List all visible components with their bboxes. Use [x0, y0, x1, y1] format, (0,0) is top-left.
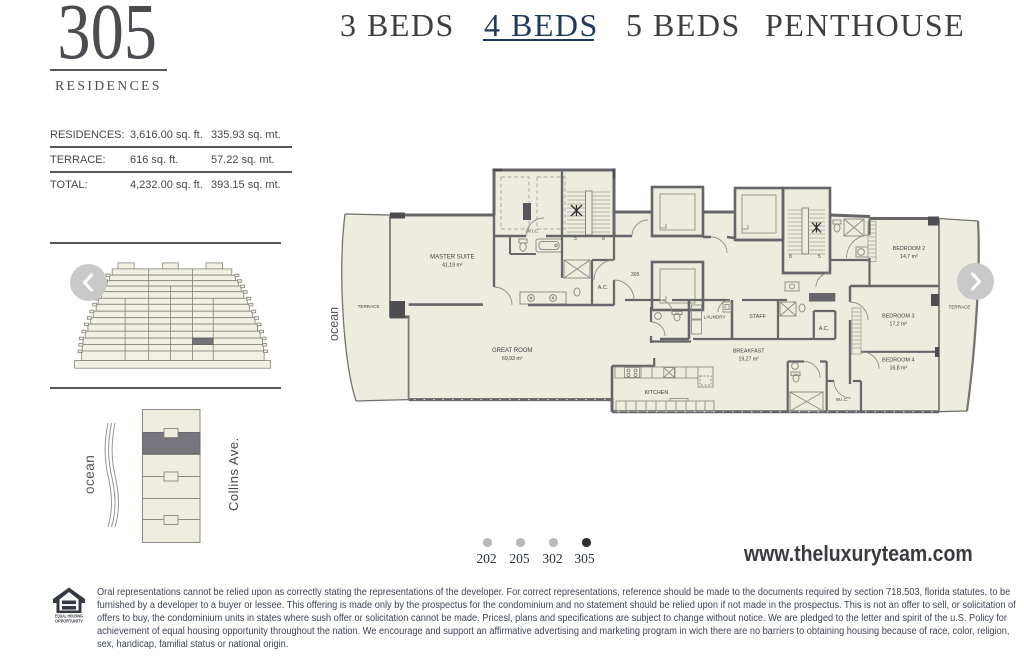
svg-text:GREAT ROOM: GREAT ROOM: [492, 348, 532, 354]
svg-text:5: 5: [818, 254, 821, 260]
svg-text:16,8 m²: 16,8 m²: [890, 366, 908, 372]
svg-text:A.C.: A.C.: [819, 326, 829, 332]
svg-text:BREAKFAST: BREAKFAST: [733, 349, 765, 355]
svg-text:OPPORTUNITY: OPPORTUNITY: [55, 618, 83, 623]
svg-text:TERRACE: TERRACE: [358, 304, 380, 309]
svg-text:BEDROOM 3: BEDROOM 3: [882, 314, 914, 320]
svg-text:BEDROOM 2: BEDROOM 2: [893, 246, 925, 252]
svg-text:KITCHEN: KITCHEN: [645, 390, 669, 396]
svg-text:A.C.: A.C.: [598, 285, 608, 291]
svg-text:W.I.C.: W.I.C.: [526, 229, 539, 234]
svg-text:41,19 m²: 41,19 m²: [442, 263, 463, 269]
svg-text:69,93 m²: 69,93 m²: [502, 356, 523, 362]
svg-text:STAFF: STAFF: [749, 314, 766, 320]
svg-text:17,2 m²: 17,2 m²: [890, 322, 908, 328]
svg-text:TERRACE: TERRACE: [949, 305, 971, 310]
svg-text:305: 305: [631, 272, 640, 278]
svg-text:19,27 m²: 19,27 m²: [738, 357, 759, 363]
svg-text:14,7 m²: 14,7 m²: [900, 254, 918, 260]
svg-text:MASTER SUITE: MASTER SUITE: [430, 255, 474, 261]
svg-text:LAUNDRY: LAUNDRY: [704, 315, 726, 320]
svg-text:BEDROOM 4: BEDROOM 4: [882, 358, 914, 364]
svg-text:8: 8: [789, 254, 792, 260]
